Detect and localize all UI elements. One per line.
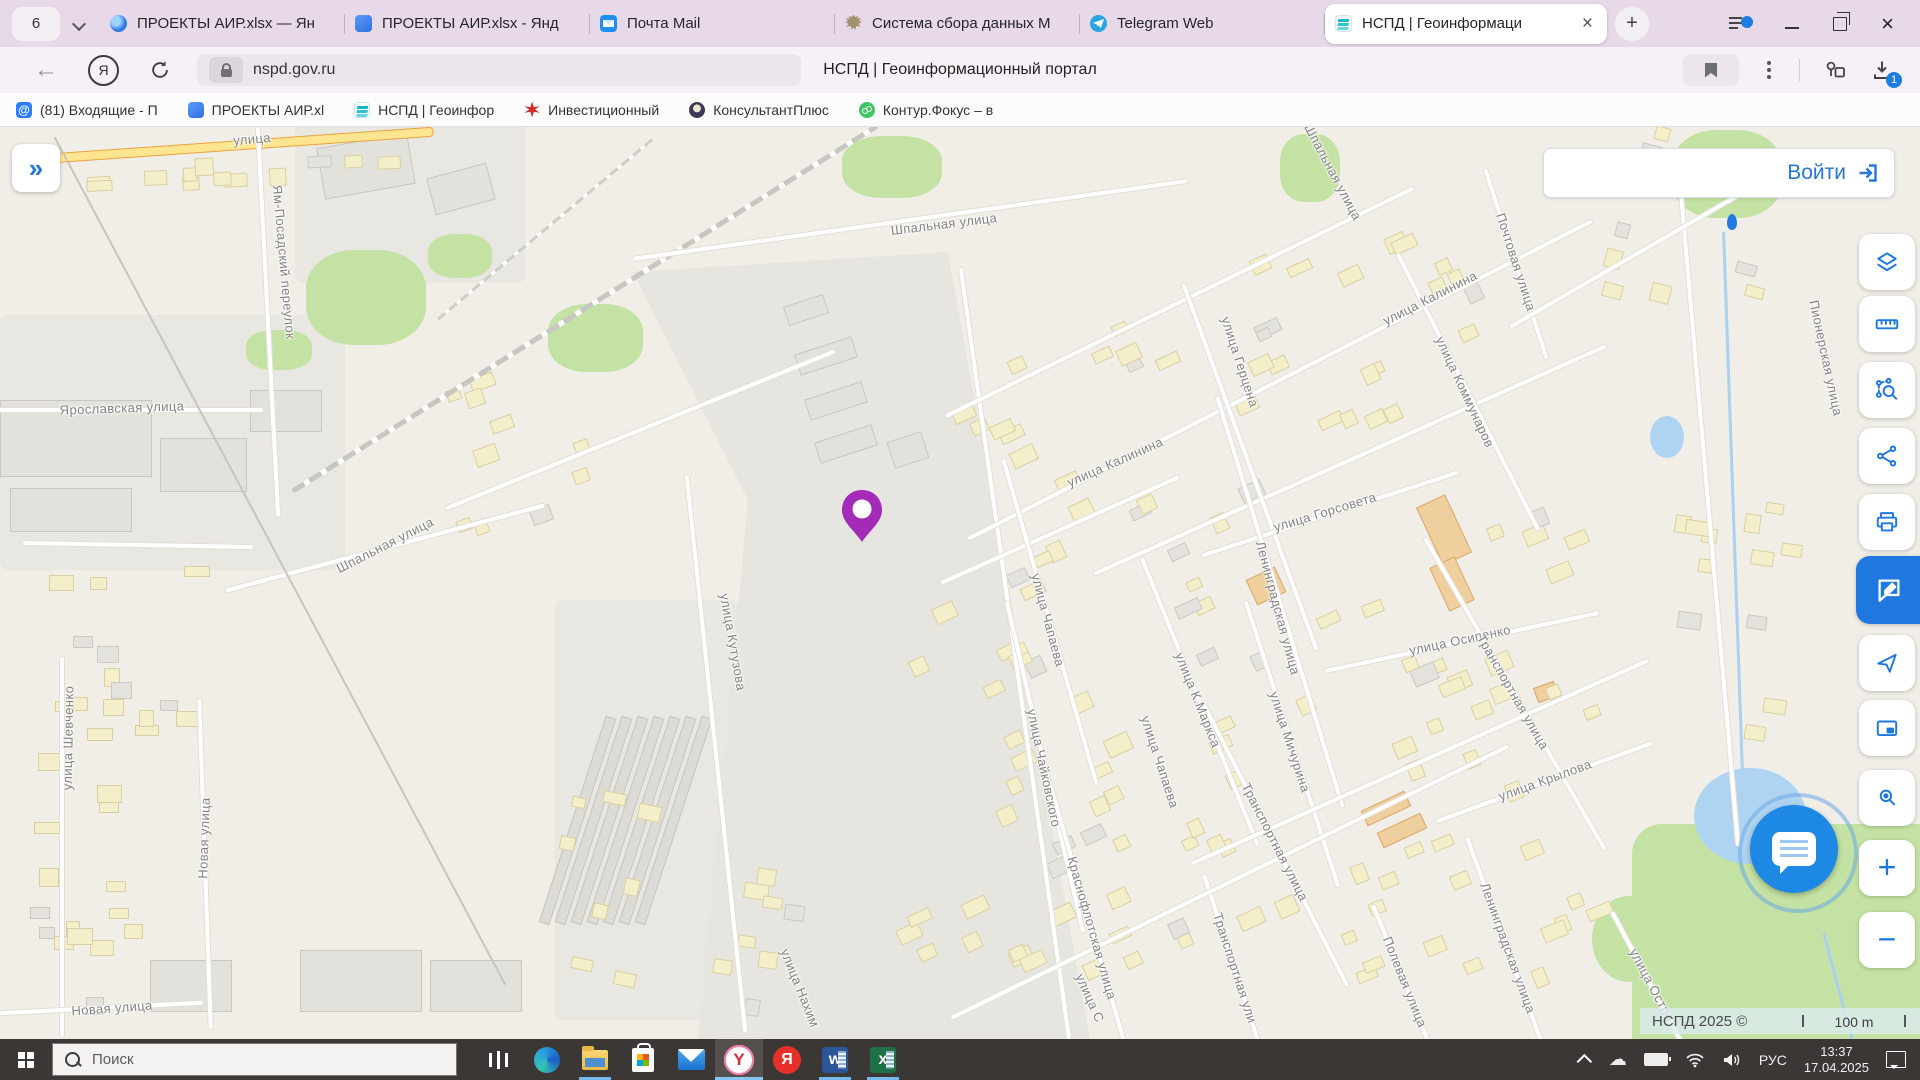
minimize-button[interactable] [1785,27,1799,29]
zoom-in-tool-button[interactable]: + [1859,840,1915,896]
refresh-icon [149,59,171,81]
house [1563,529,1590,551]
street-label: улица Шевченко [60,686,77,791]
browser-toolbar: ← Я nspd.gov.ru НСПД | Геоинформационный… [0,47,1920,93]
print-tool-button[interactable] [1859,494,1915,550]
tab-4[interactable]: Система сбора данных М [835,0,1080,47]
house [97,785,122,803]
locate-tool-button[interactable] [1859,635,1915,691]
house [1106,886,1131,910]
house [1339,409,1359,430]
yandex-browser-taskbar-button[interactable]: Y [715,1039,763,1080]
zoom-out-tool-button[interactable]: − [1859,912,1915,968]
house [603,790,628,806]
taskbar-app-icons: Y Я w x [475,1039,907,1080]
store-taskbar-button[interactable] [619,1039,667,1080]
building [430,960,522,1012]
house [1341,930,1358,946]
flag-icon [1705,63,1717,78]
house [1196,646,1220,667]
tab-title: ПРОЕКТЫ АИР.xlsx — Ян [137,15,335,32]
ruler-tool-button[interactable] [1859,296,1915,352]
green-area [306,250,426,345]
house [1185,576,1204,593]
map-attribution: НСПД 2025 © [1652,1013,1747,1030]
tab-counter-button[interactable]: 6 [12,7,60,41]
volume-icon[interactable] [1722,1052,1742,1068]
building [160,438,247,492]
house [961,930,985,954]
house [995,804,1019,828]
house [344,154,363,168]
house [758,951,779,970]
house [307,155,332,169]
house [961,895,990,919]
house [1530,966,1550,989]
house [67,928,93,945]
house [144,170,168,186]
place-search-tool-button[interactable] [1859,770,1915,826]
house [472,443,501,468]
word-taskbar-button[interactable]: w [811,1039,859,1080]
bookmark-item-6[interactable]: Контур.Фокус – в [859,102,993,118]
download-count-badge: 1 [1886,72,1902,88]
url-text[interactable]: nspd.gov.ru [253,61,335,79]
house [97,646,119,663]
house [1614,221,1632,239]
tab-title: Почта Mail [627,15,825,32]
expand-sidebar-button[interactable]: » [12,144,60,192]
house [1735,261,1758,278]
house [489,413,515,435]
house [111,682,132,698]
house [1091,345,1115,365]
bookmark-flag-button[interactable] [1683,54,1739,86]
bookmark-label: Инвестиционный [548,102,659,118]
folder-icon [582,1050,608,1070]
toolbar-right-icons: 1 [1683,54,1920,86]
house [464,387,487,409]
house [1378,870,1399,890]
house [1566,892,1585,911]
tab-title: Система сбора данных М [872,15,1070,32]
house [1286,257,1314,278]
start-button[interactable] [0,1039,52,1080]
house [1744,513,1762,534]
mail-taskbar-button[interactable] [667,1039,715,1080]
map-placemark-pin[interactable] [840,488,884,544]
bookmark-item-2[interactable]: ПРОЕКТЫ АИР.xl [188,102,324,118]
yandex-icon: Я [773,1046,801,1074]
house [90,577,107,589]
small-blue-marker-icon [1727,214,1737,230]
houses-region-10 [1621,421,1828,790]
excel-taskbar-button[interactable]: x [859,1039,907,1080]
windows-taskbar: Поиск Y Я w x ☁ РУС [0,1039,1920,1080]
house [1486,523,1505,542]
house [34,822,59,834]
mini-map-tool-button[interactable] [1859,700,1915,756]
support-chat-button[interactable] [1750,805,1838,893]
house [591,902,609,920]
house [39,868,59,887]
house [783,903,806,922]
house [916,942,938,963]
house [124,924,143,939]
house [1154,350,1181,371]
house [1519,838,1545,861]
task-view-icon [489,1051,509,1069]
red-star-icon [524,102,540,118]
wifi-icon[interactable] [1685,1052,1705,1068]
back-button[interactable]: ← [34,56,58,84]
house [1448,870,1472,892]
layers-tool-button[interactable] [1859,234,1915,290]
house [1180,835,1199,852]
tab-title: Telegram Web [1117,15,1315,32]
mailru-at-icon: @ [16,102,32,118]
house [637,803,663,823]
cube-icon [355,15,372,32]
ssl-lock-icon[interactable] [209,57,243,83]
house [1677,610,1702,630]
house [622,877,640,897]
new-tab-button[interactable]: + [1615,7,1649,41]
file-explorer-taskbar-button[interactable] [571,1039,619,1080]
tray-expand-icon[interactable] [1576,1054,1592,1070]
building [300,950,422,1012]
house [184,566,210,577]
house [1585,900,1614,922]
tab-2[interactable]: ПРОЕКТЫ АИР.xlsx - Янд [345,0,590,47]
house [713,958,734,975]
building [10,488,132,532]
windows-logo-icon [18,1052,34,1068]
street-label: Пионерская улица [1806,299,1845,418]
house [1750,549,1775,567]
tab-3[interactable]: Почта Mail [590,0,835,47]
bookmark-item-1[interactable]: @(81) Входящие - П [16,102,158,118]
screen: » Войти +− НСПД 2025 © 100 m улицаЯм-Пос… [0,0,1920,1080]
tab-strip: ПРОЕКТЫ АИР.xlsx — ЯнПРОЕКТЫ АИР.xlsx - … [100,0,1607,47]
house [1005,776,1024,796]
onedrive-icon[interactable]: ☁ [1609,1049,1627,1070]
action-center-icon[interactable] [1886,1051,1906,1068]
house [931,600,959,625]
house [73,636,93,648]
taskbar-clock[interactable]: 13:37 17.04.2025 [1804,1044,1869,1076]
restore-button[interactable] [1833,17,1847,31]
tab-6[interactable]: НСПД | Геоинформаци× [1325,4,1607,44]
house [1337,263,1364,287]
feedback-tool-button[interactable] [1856,556,1920,624]
nspd-layers-icon [354,102,370,118]
cube-icon [188,102,204,118]
search-icon [65,1052,80,1067]
tab-1[interactable]: ПРОЕКТЫ АИР.xlsx — Ян [100,0,345,47]
house [570,956,594,972]
tab-title: ПРОЕКТЫ АИР.xlsx - Янд [382,15,580,32]
map-scale-bar: 100 m [1802,1015,1906,1027]
bookmarks-bar: @(81) Входящие - ППРОЕКТЫ АИР.xlНСПД | Г… [0,93,1920,127]
house [1763,698,1788,716]
house [1653,125,1671,142]
clock-time: 13:37 [1804,1044,1869,1060]
system-tray: ☁ РУС 13:37 17.04.2025 [1581,1044,1920,1076]
excel-icon: x [870,1047,896,1073]
bookmark-label: НСПД | Геоинфор [378,102,494,118]
bookmark-label: КонсультантПлюс [713,102,829,118]
area-search-tool-button[interactable] [1859,362,1915,418]
house [49,575,74,591]
house [1458,323,1480,343]
eagle-emblem-icon [845,15,862,32]
house [1362,955,1386,975]
house [906,907,933,928]
house [737,935,756,949]
yandex-browser-icon [110,15,127,32]
bookmark-label: (81) Входящие - П [40,102,158,118]
green-area [428,234,492,278]
yandex-taskbar-button[interactable]: Я [763,1039,811,1080]
chevrons-right-icon: » [29,153,43,184]
house [1426,718,1444,736]
login-button[interactable]: Войти [1787,161,1846,185]
house [1361,598,1386,618]
green-area [246,330,312,370]
page-title: НСПД | Геоинформационный портал [823,61,1097,79]
house [30,907,50,919]
house [762,895,783,910]
house [1744,724,1766,742]
login-arrow-icon [1856,161,1880,185]
mail-envelope-icon [600,15,617,32]
house [1403,841,1424,859]
house [1186,817,1206,839]
house [1003,729,1026,750]
side-panels-icon[interactable] [1729,16,1751,32]
divider [1799,59,1800,81]
house [1744,284,1765,301]
house [1582,704,1601,721]
house [1103,731,1134,759]
street-label: Новая улица [195,797,213,879]
house [1174,597,1203,620]
taskbar-search-box[interactable]: Поиск [52,1043,457,1076]
street-label: Шпальная улица [334,514,436,576]
house [90,940,114,956]
edge-taskbar-button[interactable] [523,1039,571,1080]
house [744,998,761,1017]
bookmark-item-5[interactable]: КонсультантПлюс [689,102,829,118]
store-icon [632,1048,654,1072]
house [983,679,1006,699]
edge-icon [534,1047,560,1073]
house [1462,957,1484,976]
share-tool-button[interactable] [1859,428,1915,484]
tab-title: НСПД | Геоинформаци [1362,15,1578,32]
house [1540,919,1569,943]
clock-date: 17.04.2025 [1804,1060,1869,1076]
search-placeholder: Поиск [92,1051,134,1068]
extensions-icon[interactable] [1822,58,1848,82]
house [1167,542,1190,562]
map-attribution-bar: НСПД 2025 © 100 m [1640,1008,1920,1034]
close-window-button[interactable]: × [1881,13,1894,35]
language-indicator[interactable]: РУС [1759,1052,1787,1068]
house [106,881,125,892]
address-bar[interactable]: nspd.gov.ru [197,54,801,86]
house [559,835,577,852]
house [1649,282,1673,305]
browser-tab-bar: 6 ПРОЕКТЫ АИР.xlsx — ЯнПРОЕКТЫ АИР.xlsx … [0,0,1920,47]
house [1350,863,1370,886]
login-bar[interactable]: Войти [1543,148,1895,198]
house [1112,834,1131,853]
house [39,927,55,939]
house [1006,355,1027,375]
tab-list-chevron-icon[interactable] [66,11,92,37]
house [1765,502,1784,516]
refresh-button[interactable] [149,59,171,81]
window-controls: × [1729,13,1920,35]
bookmark-label: ПРОЕКТЫ АИР.xl [212,102,324,118]
task-view-button[interactable] [475,1039,523,1080]
green-area [842,136,942,198]
house [87,728,113,741]
house [908,656,931,679]
house [756,868,777,887]
house [1236,906,1267,932]
consultant-icon [689,102,705,118]
map-canvas[interactable]: » Войти +− НСПД 2025 © 100 m улицаЯм-Пос… [0,0,1920,1080]
house [571,466,591,485]
house [212,171,231,187]
house [1746,614,1767,631]
house [571,795,587,809]
house [139,710,154,727]
house [613,970,638,988]
telegram-icon [1090,15,1107,32]
tab-close-icon[interactable]: × [1578,13,1597,35]
bookmark-item-4[interactable]: Инвестиционный [524,102,659,118]
house [38,753,62,771]
chat-bubble-icon [1772,832,1816,866]
house [1438,676,1466,698]
house [194,157,214,177]
map-scale-label: 100 m [1835,1017,1874,1027]
mail-icon [678,1049,705,1070]
house [1392,735,1419,759]
battery-icon[interactable] [1644,1053,1668,1066]
house [1423,935,1448,957]
nspd-layers-icon [1335,15,1352,32]
houses-region-8 [399,307,690,592]
house [377,155,401,169]
yandex-home-button[interactable]: Я [88,55,119,86]
house [1601,281,1624,301]
house [1009,443,1039,469]
downloads-button[interactable]: 1 [1870,58,1894,82]
house [86,179,112,192]
house [1781,542,1803,558]
bookmark-item-3[interactable]: НСПД | Геоинфор [354,102,494,118]
bookmark-label: Контур.Фокус – в [883,102,993,118]
house [160,700,178,711]
house [109,908,129,919]
houses-region-12 [689,842,841,1028]
tab-5[interactable]: Telegram Web [1080,0,1325,47]
house [1470,699,1494,721]
more-menu-icon[interactable] [1767,68,1771,72]
yandex-browser-icon: Y [724,1045,754,1075]
house [103,699,125,716]
word-icon: w [822,1047,848,1073]
kontur-icon [859,102,875,118]
house [1122,950,1144,971]
house [1545,560,1574,584]
